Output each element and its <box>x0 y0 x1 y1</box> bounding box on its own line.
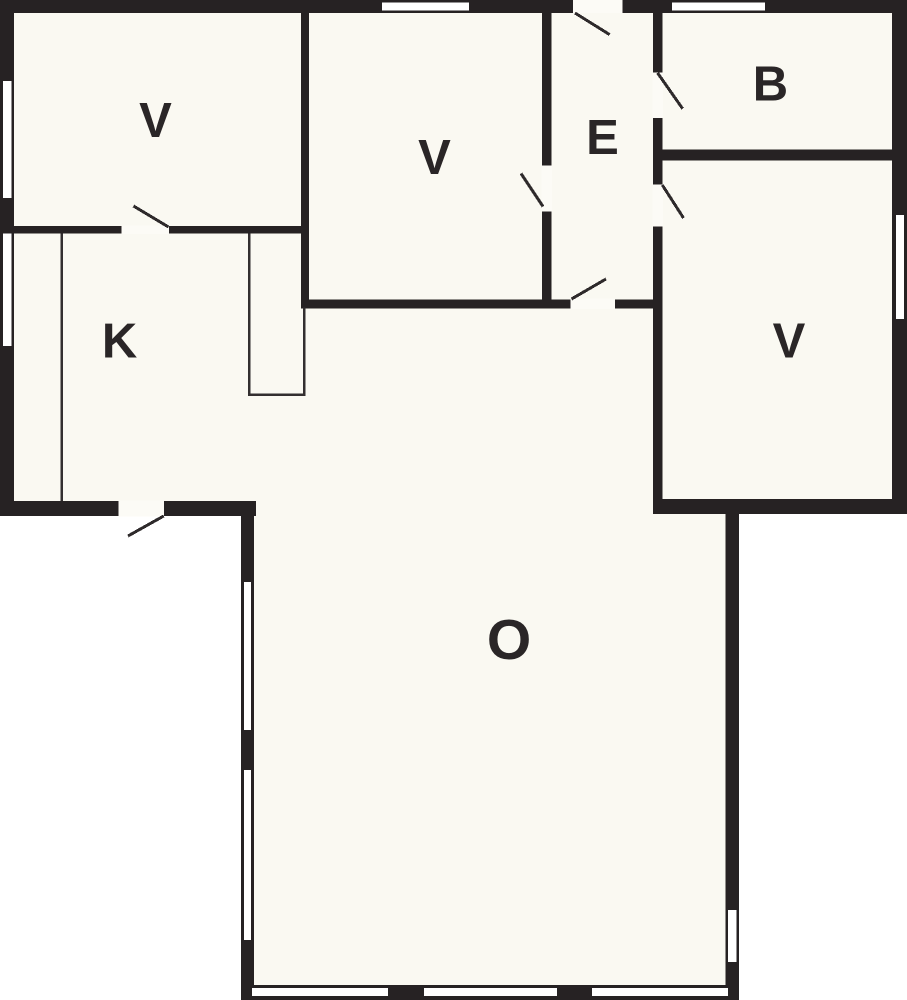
svg-text:V: V <box>139 94 172 148</box>
svg-text:E: E <box>586 111 619 165</box>
svg-text:V: V <box>773 315 806 369</box>
svg-text:O: O <box>487 608 531 672</box>
svg-text:B: B <box>753 58 788 112</box>
svg-text:K: K <box>102 315 137 369</box>
svg-text:V: V <box>418 131 451 185</box>
